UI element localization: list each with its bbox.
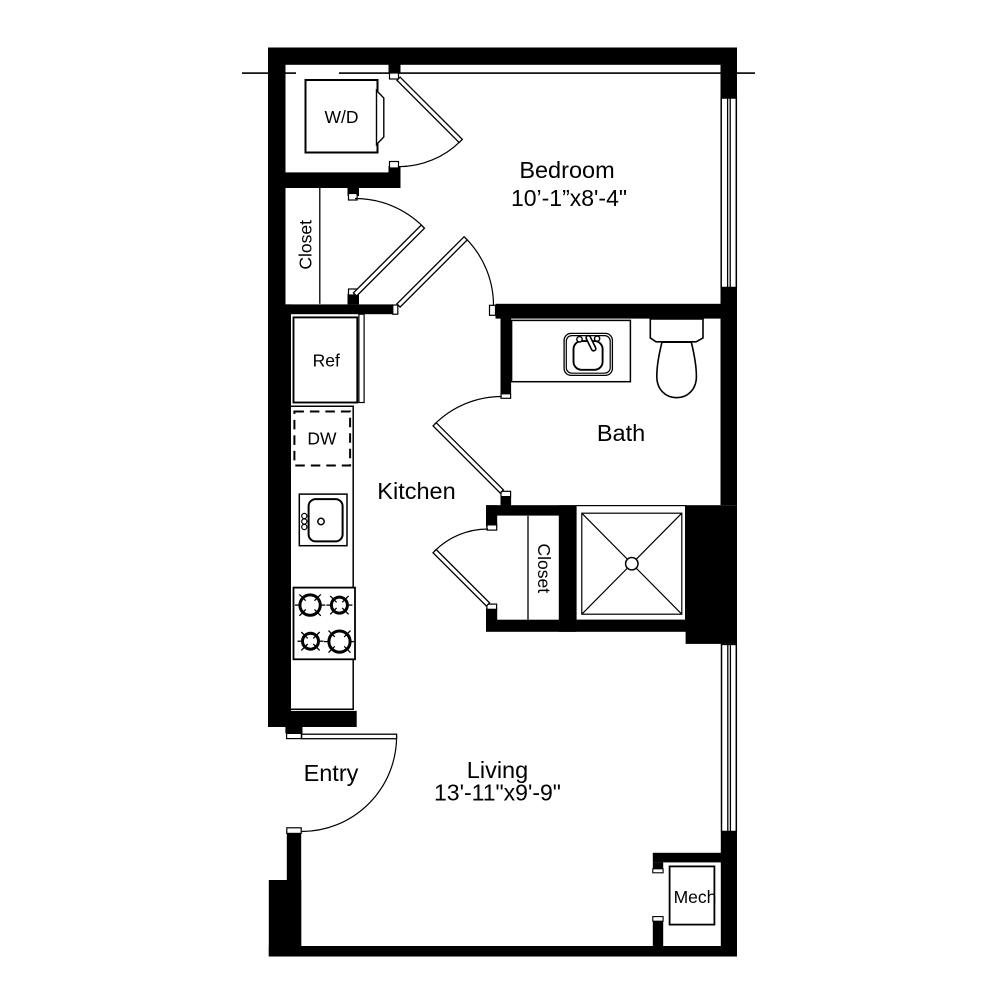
svg-text:Closet: Closet	[295, 220, 315, 270]
svg-text:Entry: Entry	[304, 760, 359, 786]
svg-text:10’-1”x8'-4": 10’-1”x8'-4"	[511, 185, 627, 211]
svg-text:13'-11"x9'-9": 13'-11"x9'-9"	[434, 780, 561, 806]
svg-text:Bath: Bath	[597, 420, 645, 446]
svg-text:Mech: Mech	[674, 887, 717, 907]
svg-text:Closet: Closet	[534, 543, 554, 593]
svg-text:W/D: W/D	[324, 107, 358, 127]
svg-text:Ref: Ref	[313, 351, 340, 371]
svg-text:Bedroom: Bedroom	[519, 157, 614, 183]
svg-text:Kitchen: Kitchen	[377, 478, 455, 504]
svg-text:DW: DW	[307, 429, 337, 449]
